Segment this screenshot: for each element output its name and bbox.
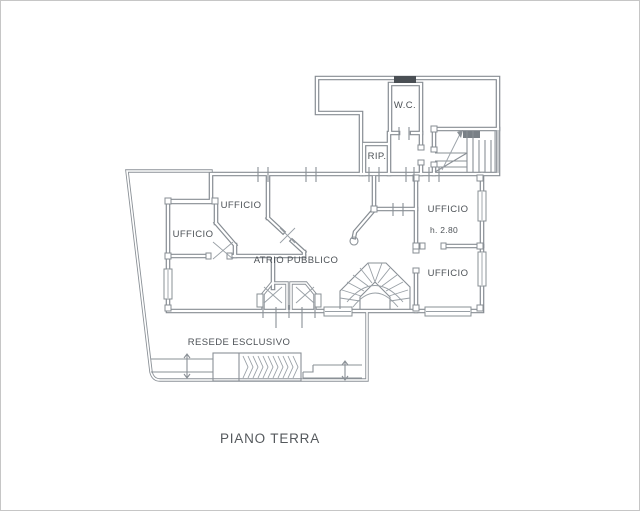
fan-staircase <box>340 263 410 309</box>
walkway-left <box>151 359 213 372</box>
upper-staircase <box>435 130 499 173</box>
floor-plan-page: W.C. RIP. UFFICIO UFFICIO UFFICIO h. 2.8… <box>0 0 640 511</box>
wall-upper-office <box>268 176 304 256</box>
wall-vestibule <box>354 177 416 237</box>
label-ufficio-right-top: UFFICIO <box>428 204 469 215</box>
floor-plan-drawing: W.C. RIP. UFFICIO UFFICIO UFFICIO h. 2.8… <box>1 1 640 511</box>
walkway-right <box>303 365 362 378</box>
label-height-note: h. 2.80 <box>430 225 458 235</box>
walkway-right-arrow <box>342 361 348 380</box>
door-swing-chamfer <box>280 228 295 243</box>
walkway-left-arrow <box>184 354 190 378</box>
door-swing-entrance-right <box>296 287 314 303</box>
label-ufficio-upper: UFFICIO <box>221 200 262 211</box>
entrance-right-leaf <box>315 294 321 307</box>
label-rip: RIP. <box>368 151 387 162</box>
label-atrio: ATRIO PUBBLICO <box>254 255 339 266</box>
wc-vent-bar <box>394 76 416 83</box>
label-wc: W.C. <box>394 100 416 111</box>
stair-wall-hatch <box>494 130 499 173</box>
corner-posts <box>165 126 483 311</box>
ramp-hatching <box>243 356 298 378</box>
door-swing-left-room <box>213 242 233 259</box>
label-ufficio-right-bottom: UFFICIO <box>428 268 469 279</box>
stair-newel <box>463 131 480 138</box>
plan-details: W.C. RIP. UFFICIO UFFICIO UFFICIO h. 2.8… <box>151 76 499 446</box>
label-resede: RESEDE ESCLUSIVO <box>188 337 291 348</box>
walkways <box>151 353 362 381</box>
entrance-left-leaf <box>257 294 263 307</box>
label-ufficio-left: UFFICIO <box>173 229 214 240</box>
label-floor-title: PIANO TERRA <box>220 431 320 446</box>
door-ticks <box>258 127 439 328</box>
